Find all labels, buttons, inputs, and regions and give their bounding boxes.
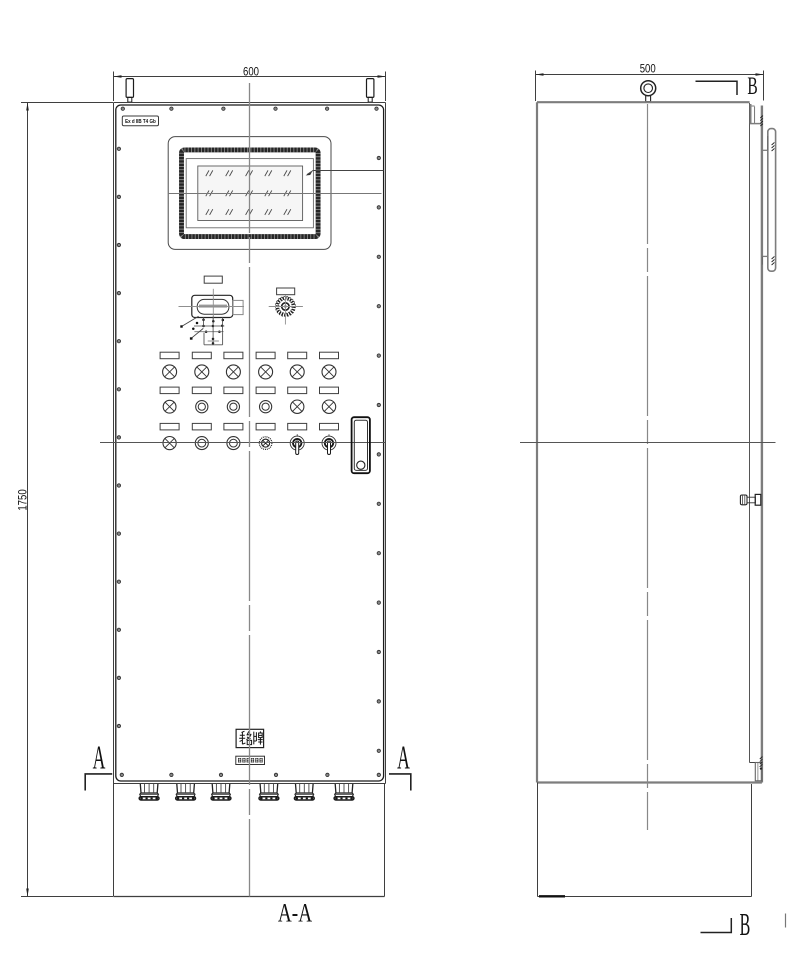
svg-text:Ex d IIB T4 Gb: Ex d IIB T4 Gb xyxy=(125,119,156,125)
svg-text:B: B xyxy=(747,72,757,100)
svg-text:600: 600 xyxy=(243,65,259,78)
svg-text:B: B xyxy=(740,907,751,942)
svg-text:A-A: A-A xyxy=(278,899,313,927)
svg-text:1750: 1750 xyxy=(17,489,30,510)
svg-text:A: A xyxy=(397,738,410,776)
svg-text:500: 500 xyxy=(640,62,656,75)
svg-text:A: A xyxy=(93,738,106,776)
